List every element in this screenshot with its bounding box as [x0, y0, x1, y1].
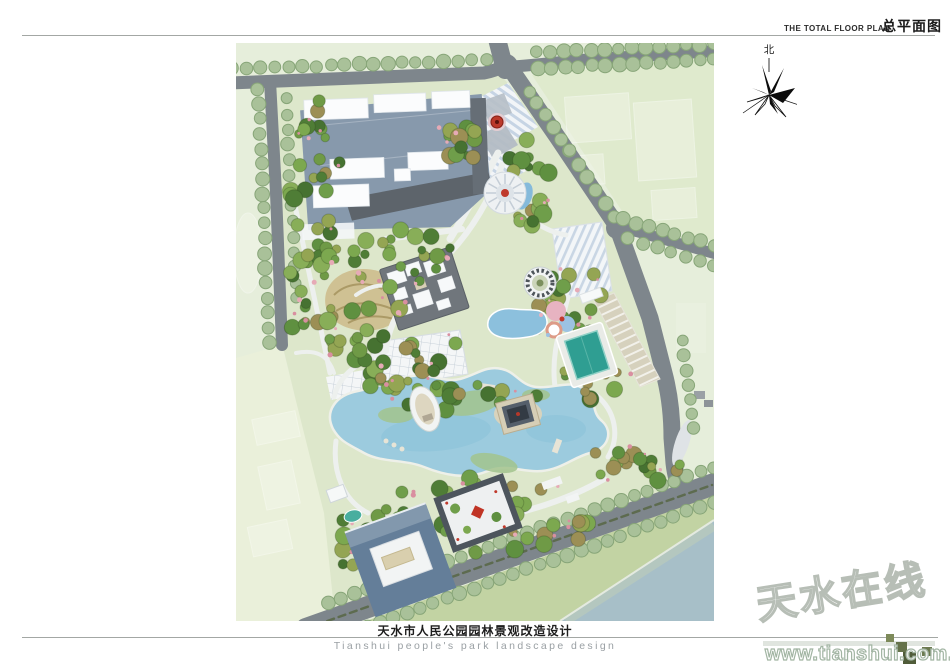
header-title-zh: 总平面图: [882, 16, 942, 36]
header-title-en: THE TOTAL FLOOR PLAN: [784, 24, 890, 33]
dial-plaza: [524, 267, 556, 299]
footer-title-zh: 天水市人民公园园林景观改造设计: [236, 622, 714, 639]
watermark-url: www.tianshui.com.cn: [765, 643, 950, 666]
plan-sheet: THE TOTAL FLOOR PLAN 总平面图 北: [0, 0, 950, 671]
master-plan-image: [236, 43, 714, 621]
north-star-icon: 北: [741, 41, 797, 121]
north-label: 北: [764, 44, 775, 56]
footer-title-en: Tianshui people's park landscape design: [236, 640, 714, 652]
north-arrow: 北: [741, 41, 797, 121]
watermark-site-name: 天水在线: [752, 547, 931, 631]
header-rule: [22, 35, 935, 36]
watermark: 天水在线 www.tianshui.com.cn: [755, 575, 950, 671]
watermark-square: [886, 634, 894, 642]
red-pavilion: [488, 113, 506, 131]
